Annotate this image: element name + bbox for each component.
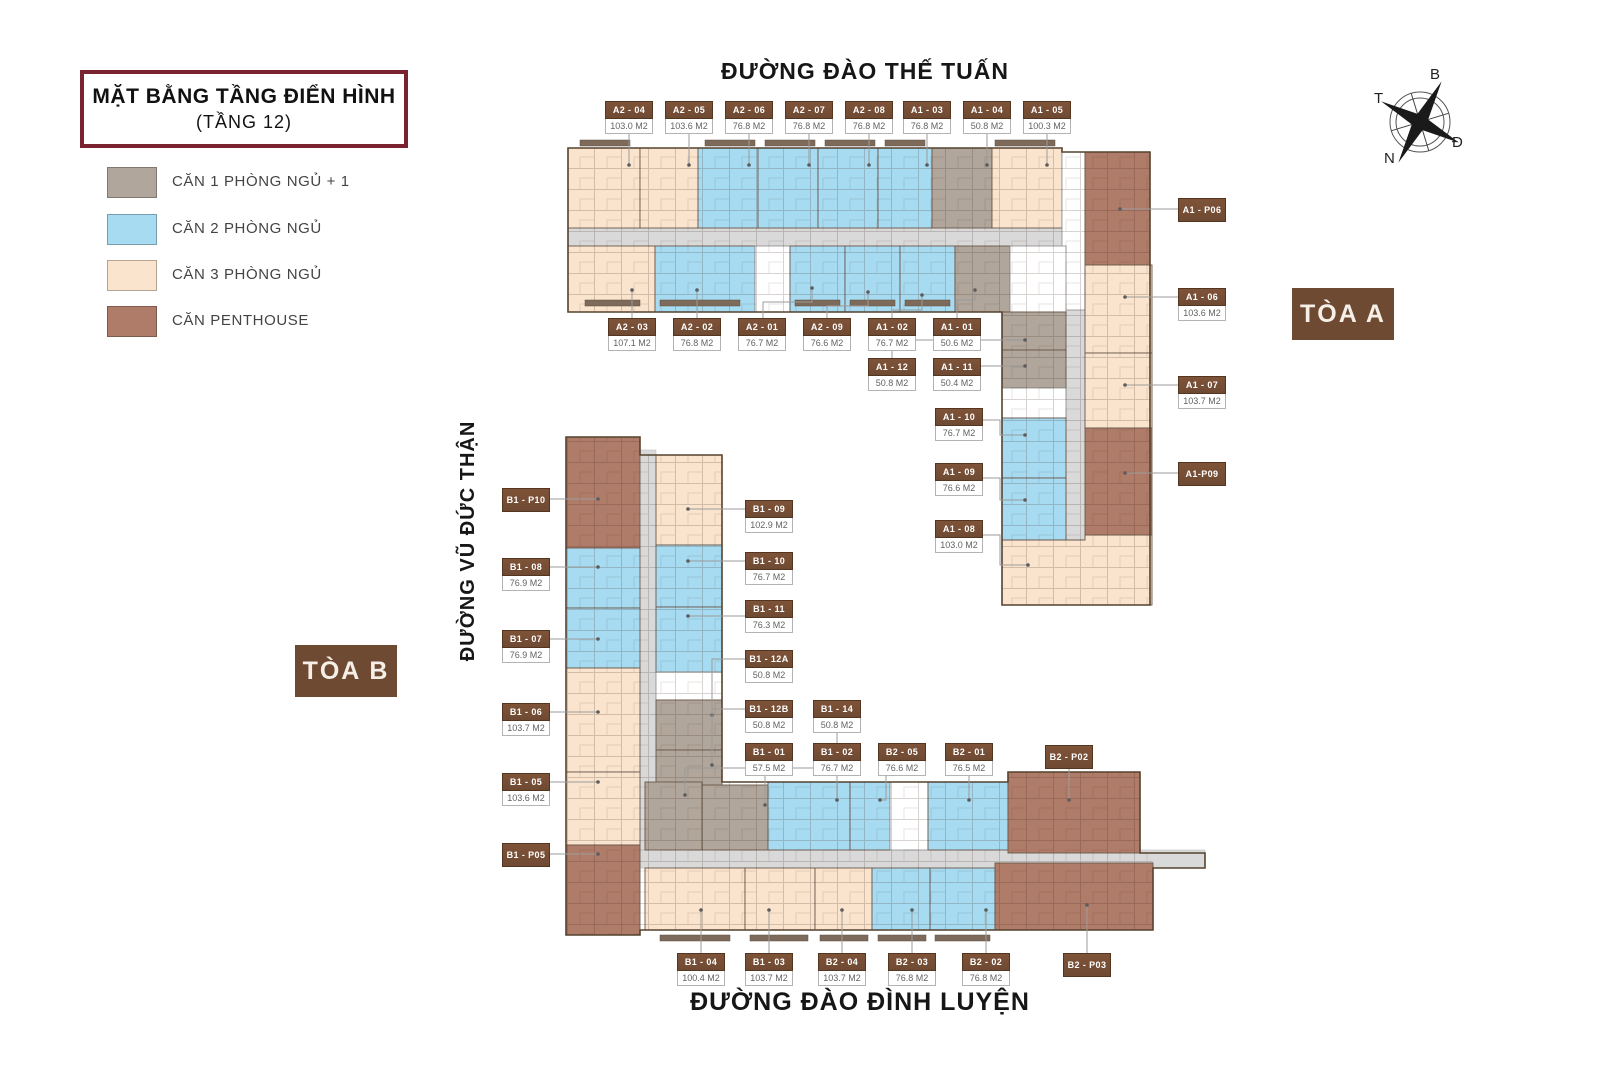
unit-label-b1-11: B1 - 1176.3 M2: [745, 600, 793, 633]
unit-label-b1-06: B1 - 06103.7 M2: [502, 703, 550, 736]
unit-label-b1-12b: B1 - 12B50.8 M2: [745, 700, 793, 733]
unit-label-b2-p03: B2 - P03: [1063, 953, 1111, 977]
unit-label-a2-03: A2 - 03107.1 M2: [608, 318, 656, 351]
unit-label-a1-12: A1 - 1250.8 M2: [868, 358, 916, 391]
unit-label-b2-p02: B2 - P02: [1045, 745, 1093, 769]
compass-west-label: T: [1374, 90, 1383, 107]
unit-label-a2-06: A2 - 0676.8 M2: [725, 101, 773, 134]
compass-south-label: N: [1384, 150, 1395, 167]
floor-plan-canvas: [0, 0, 1600, 1076]
unit-label-b1-p05: B1 - P05: [502, 843, 550, 867]
unit-label-a1-10: A1 - 1076.7 M2: [935, 408, 983, 441]
unit-label-b1-01: B1 - 0157.5 M2: [745, 743, 793, 776]
unit-label-a1-05: A1 - 05100.3 M2: [1023, 101, 1071, 134]
unit-label-a1-02: A1 - 0276.7 M2: [868, 318, 916, 351]
unit-label-b1-07: B1 - 0776.9 M2: [502, 630, 550, 663]
unit-label-a1-04: A1 - 0450.8 M2: [963, 101, 1011, 134]
unit-label-b2-01: B2 - 0176.5 M2: [945, 743, 993, 776]
unit-label-b1-08: B1 - 0876.9 M2: [502, 558, 550, 591]
unit-label-a2-05: A2 - 05103.6 M2: [665, 101, 713, 134]
unit-label-b1-09: B1 - 09102.9 M2: [745, 500, 793, 533]
unit-label-b1-04: B1 - 04100.4 M2: [677, 953, 725, 986]
unit-label-a1-07: A1 - 07103.7 M2: [1178, 376, 1226, 409]
unit-label-a1-08: A1 - 08103.0 M2: [935, 520, 983, 553]
unit-label-a1-p09: A1-P09: [1178, 462, 1226, 486]
unit-label-b1-12a: B1 - 12A50.8 M2: [745, 650, 793, 683]
unit-label-b1-05: B1 - 05103.6 M2: [502, 773, 550, 806]
unit-label-b2-03: B2 - 0376.8 M2: [888, 953, 936, 986]
unit-label-a2-04: A2 - 04103.0 M2: [605, 101, 653, 134]
unit-label-a1-03: A1 - 0376.8 M2: [903, 101, 951, 134]
unit-label-a1-01: A1 - 0150.6 M2: [933, 318, 981, 351]
tower-b-balconies: [660, 935, 990, 941]
floorplan-page: { "title": {"line1": "MẶT BẰNG TẦNG ĐIỂN…: [0, 0, 1600, 1076]
unit-label-b2-02: B2 - 0276.8 M2: [962, 953, 1010, 986]
unit-label-a2-07: A2 - 0776.8 M2: [785, 101, 833, 134]
unit-label-a2-08: A2 - 0876.8 M2: [845, 101, 893, 134]
unit-label-a1-11: A1 - 1150.4 M2: [933, 358, 981, 391]
unit-label-b2-05: B2 - 0576.6 M2: [878, 743, 926, 776]
unit-label-b1-02: B1 - 0276.7 M2: [813, 743, 861, 776]
unit-label-a2-09: A2 - 0976.6 M2: [803, 318, 851, 351]
unit-label-a1-09: A1 - 0976.6 M2: [935, 463, 983, 496]
compass-north-label: B: [1430, 66, 1440, 83]
unit-label-a1-p06: A1 - P06: [1178, 198, 1226, 222]
compass-icon: [1360, 61, 1481, 184]
unit-label-a2-02: A2 - 0276.8 M2: [673, 318, 721, 351]
unit-label-b1-10: B1 - 1076.7 M2: [745, 552, 793, 585]
unit-label-b1-p10: B1 - P10: [502, 488, 550, 512]
unit-label-b2-04: B2 - 04103.7 M2: [818, 953, 866, 986]
unit-label-b1-03: B1 - 03103.7 M2: [745, 953, 793, 986]
unit-label-a2-01: A2 - 0176.7 M2: [738, 318, 786, 351]
unit-label-b1-14: B1 - 1450.8 M2: [813, 700, 861, 733]
unit-label-a1-06: A1 - 06103.6 M2: [1178, 288, 1226, 321]
compass-east-label: Đ: [1452, 134, 1463, 151]
